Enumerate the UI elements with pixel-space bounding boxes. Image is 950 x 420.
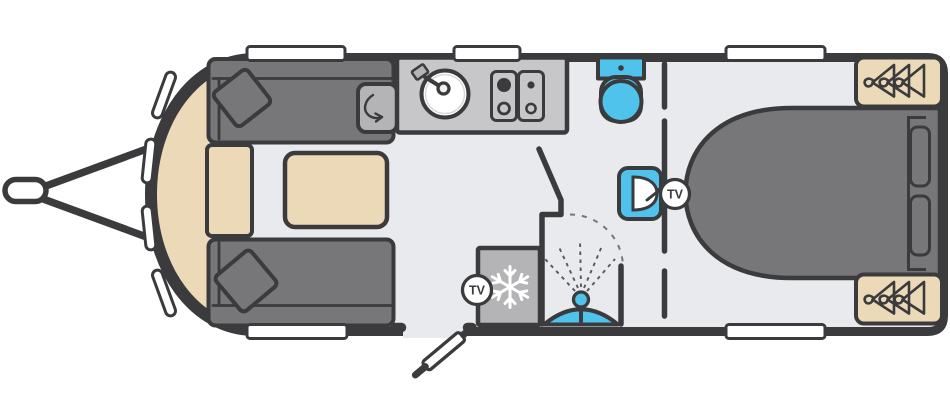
wardrobe-bottom (856, 275, 942, 324)
toilet (598, 58, 644, 123)
island-bed (686, 108, 941, 278)
caravan-floorplan: TV TV (0, 0, 950, 420)
window-top-kitchen (454, 47, 520, 61)
hob-4-burner (492, 72, 544, 121)
table (285, 153, 387, 227)
window-bottom-bedroom (726, 325, 825, 339)
window-bottom-lounge (247, 325, 347, 339)
hitch-coupling (5, 180, 46, 202)
washbasin (619, 168, 661, 219)
drawbar-bottom (35, 196, 152, 239)
worktop-flap (358, 84, 397, 132)
drawbar-top (35, 147, 152, 190)
entry-door (395, 316, 473, 379)
chest-seat (207, 145, 252, 236)
door-handle (415, 367, 425, 375)
tv-point-label: TV (469, 284, 486, 298)
tow-hitch (5, 147, 152, 239)
sofa-bottom (209, 240, 394, 326)
window-top-bedroom (726, 47, 825, 61)
tv-point-rear: TV (661, 180, 690, 209)
window-top-lounge (247, 47, 345, 61)
tv-point-label: TV (667, 188, 684, 202)
shower-head (574, 292, 589, 307)
kitchen-worktop (397, 58, 567, 133)
wardrobe-top (856, 58, 942, 107)
tv-point-front: TV (463, 276, 492, 305)
